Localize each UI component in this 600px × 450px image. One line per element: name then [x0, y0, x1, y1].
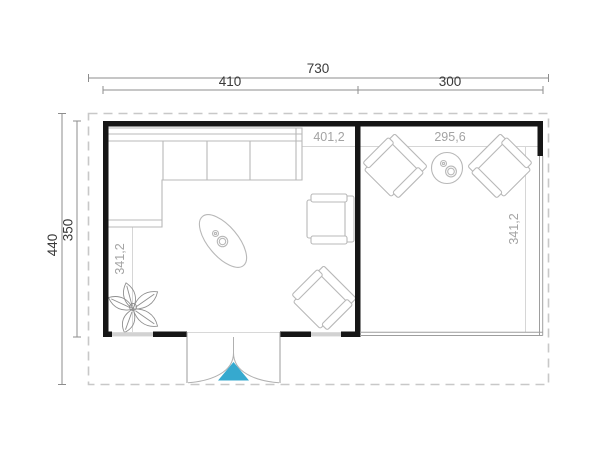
main-section-width-label: 410 — [219, 74, 242, 89]
back-wall — [103, 121, 543, 127]
left-room-depth-label: 341,2 — [113, 243, 127, 274]
floor-plan-canvas: 730 410 300 440 350 401,2 295,6 341,2 34… — [0, 0, 600, 450]
window-right — [311, 332, 341, 336]
window-left — [112, 332, 153, 336]
armchair-left-room-upper — [307, 194, 354, 244]
overall-depth-label: 440 — [45, 234, 60, 257]
round-table — [432, 153, 463, 184]
right-room-depth-label: 341,2 — [507, 213, 521, 244]
armchair-left-room-lower — [289, 264, 358, 333]
floor-plan-drawing: 730 410 300 440 350 401,2 295,6 341,2 34… — [0, 0, 600, 450]
armchair-right-room-left — [360, 132, 429, 201]
right-wall-stub — [538, 121, 544, 156]
plant — [106, 281, 161, 334]
corner-sofa — [108, 128, 302, 227]
annex-section-width-label: 300 — [439, 74, 462, 89]
left-room-width-label: 401,2 — [313, 130, 344, 144]
armchair-right-room-right — [466, 132, 535, 201]
double-door — [187, 332, 280, 383]
outer-dimension-lines — [58, 74, 549, 385]
left-wall — [103, 121, 109, 337]
door-accent-triangle — [218, 362, 249, 381]
building-depth-label: 350 — [61, 219, 76, 242]
overall-width-label: 730 — [307, 61, 330, 76]
coffee-table — [191, 207, 255, 275]
right-room-width-label: 295,6 — [434, 130, 465, 144]
dividing-wall — [355, 121, 361, 337]
